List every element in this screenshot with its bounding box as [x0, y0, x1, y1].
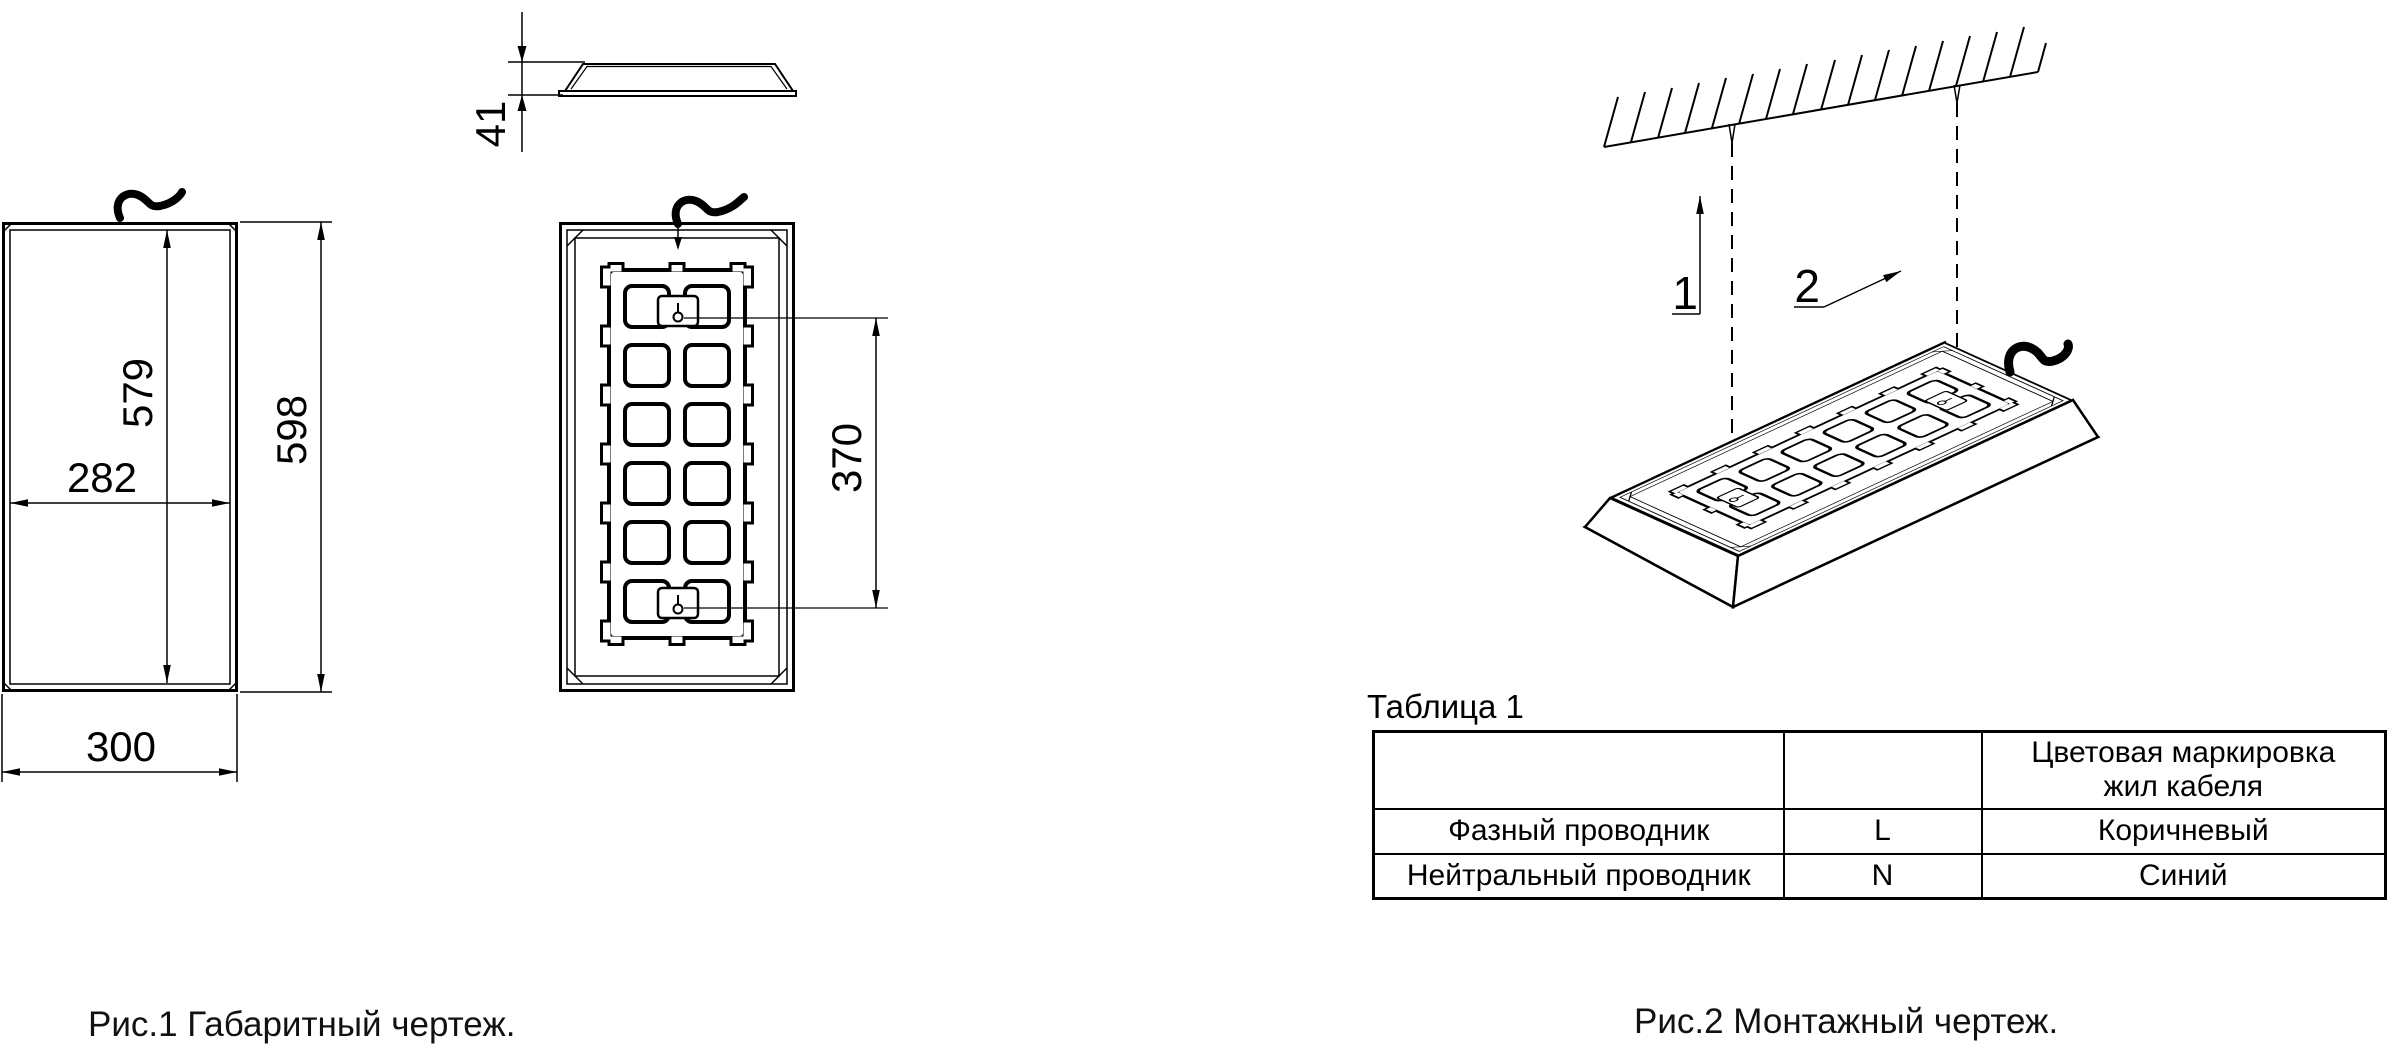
wiring-table: Цветовая маркировка жил кабеля Фазный пр… — [1372, 730, 2387, 900]
header-color-line1: Цветовая маркировка — [1983, 736, 2385, 770]
conductor-symbol: N — [1784, 854, 1982, 899]
rear-view — [561, 197, 794, 691]
header-cell-empty-1 — [1374, 732, 1784, 809]
dim-598: 598 — [240, 222, 332, 692]
dim-41-label: 41 — [467, 101, 514, 148]
dim-300-label: 300 — [86, 723, 156, 770]
callout-2: 2 — [1794, 260, 1901, 312]
figure2-caption: Рис.2 Монтажный чертеж. — [1634, 1002, 2058, 1042]
figure1-caption: Рис.1 Габаритный чертеж. — [88, 1005, 516, 1045]
conductor-name: Фазный проводник — [1374, 809, 1784, 854]
side-profile-view — [559, 64, 796, 96]
dim-300: 300 — [2, 694, 237, 782]
table-title: Таблица 1 — [1367, 688, 1524, 726]
conductor-color: Коричневый — [1982, 809, 2386, 854]
header-cell-empty-2 — [1784, 732, 1982, 809]
header-color-line2: жил кабеля — [1983, 770, 2385, 804]
table-header-row: Цветовая маркировка жил кабеля — [1374, 732, 2386, 809]
drawing-sheet: 41 579 598 282 — [0, 0, 2400, 1055]
callout-2-label: 2 — [1794, 260, 1820, 312]
dim-598-label: 598 — [268, 395, 315, 465]
conductor-color: Синий — [1982, 854, 2386, 899]
power-cable — [118, 192, 182, 218]
front-view — [4, 192, 237, 691]
figure1-group: 41 579 598 282 — [2, 12, 888, 782]
callout-1: 1 — [1672, 196, 1700, 319]
power-cable-iso — [2009, 344, 2069, 372]
power-cable — [676, 197, 744, 224]
dim-579-label: 579 — [114, 358, 161, 428]
isometric-panel — [1585, 342, 2098, 607]
conductor-name: Нейтральный проводник — [1374, 854, 1784, 899]
figure2-group: 1 2 — [1585, 27, 2098, 607]
conductor-symbol: L — [1784, 809, 1982, 854]
ceiling-hatch — [1604, 27, 2046, 147]
table-row: Фазный проводник L Коричневый — [1374, 809, 2386, 854]
header-cell-color: Цветовая маркировка жил кабеля — [1982, 732, 2386, 809]
dim-282-label: 282 — [67, 454, 137, 501]
dim-41: 41 — [467, 12, 585, 152]
table-row: Нейтральный проводник N Синий — [1374, 854, 2386, 899]
callout-1-label: 1 — [1672, 267, 1698, 319]
dim-370-label: 370 — [823, 423, 870, 493]
